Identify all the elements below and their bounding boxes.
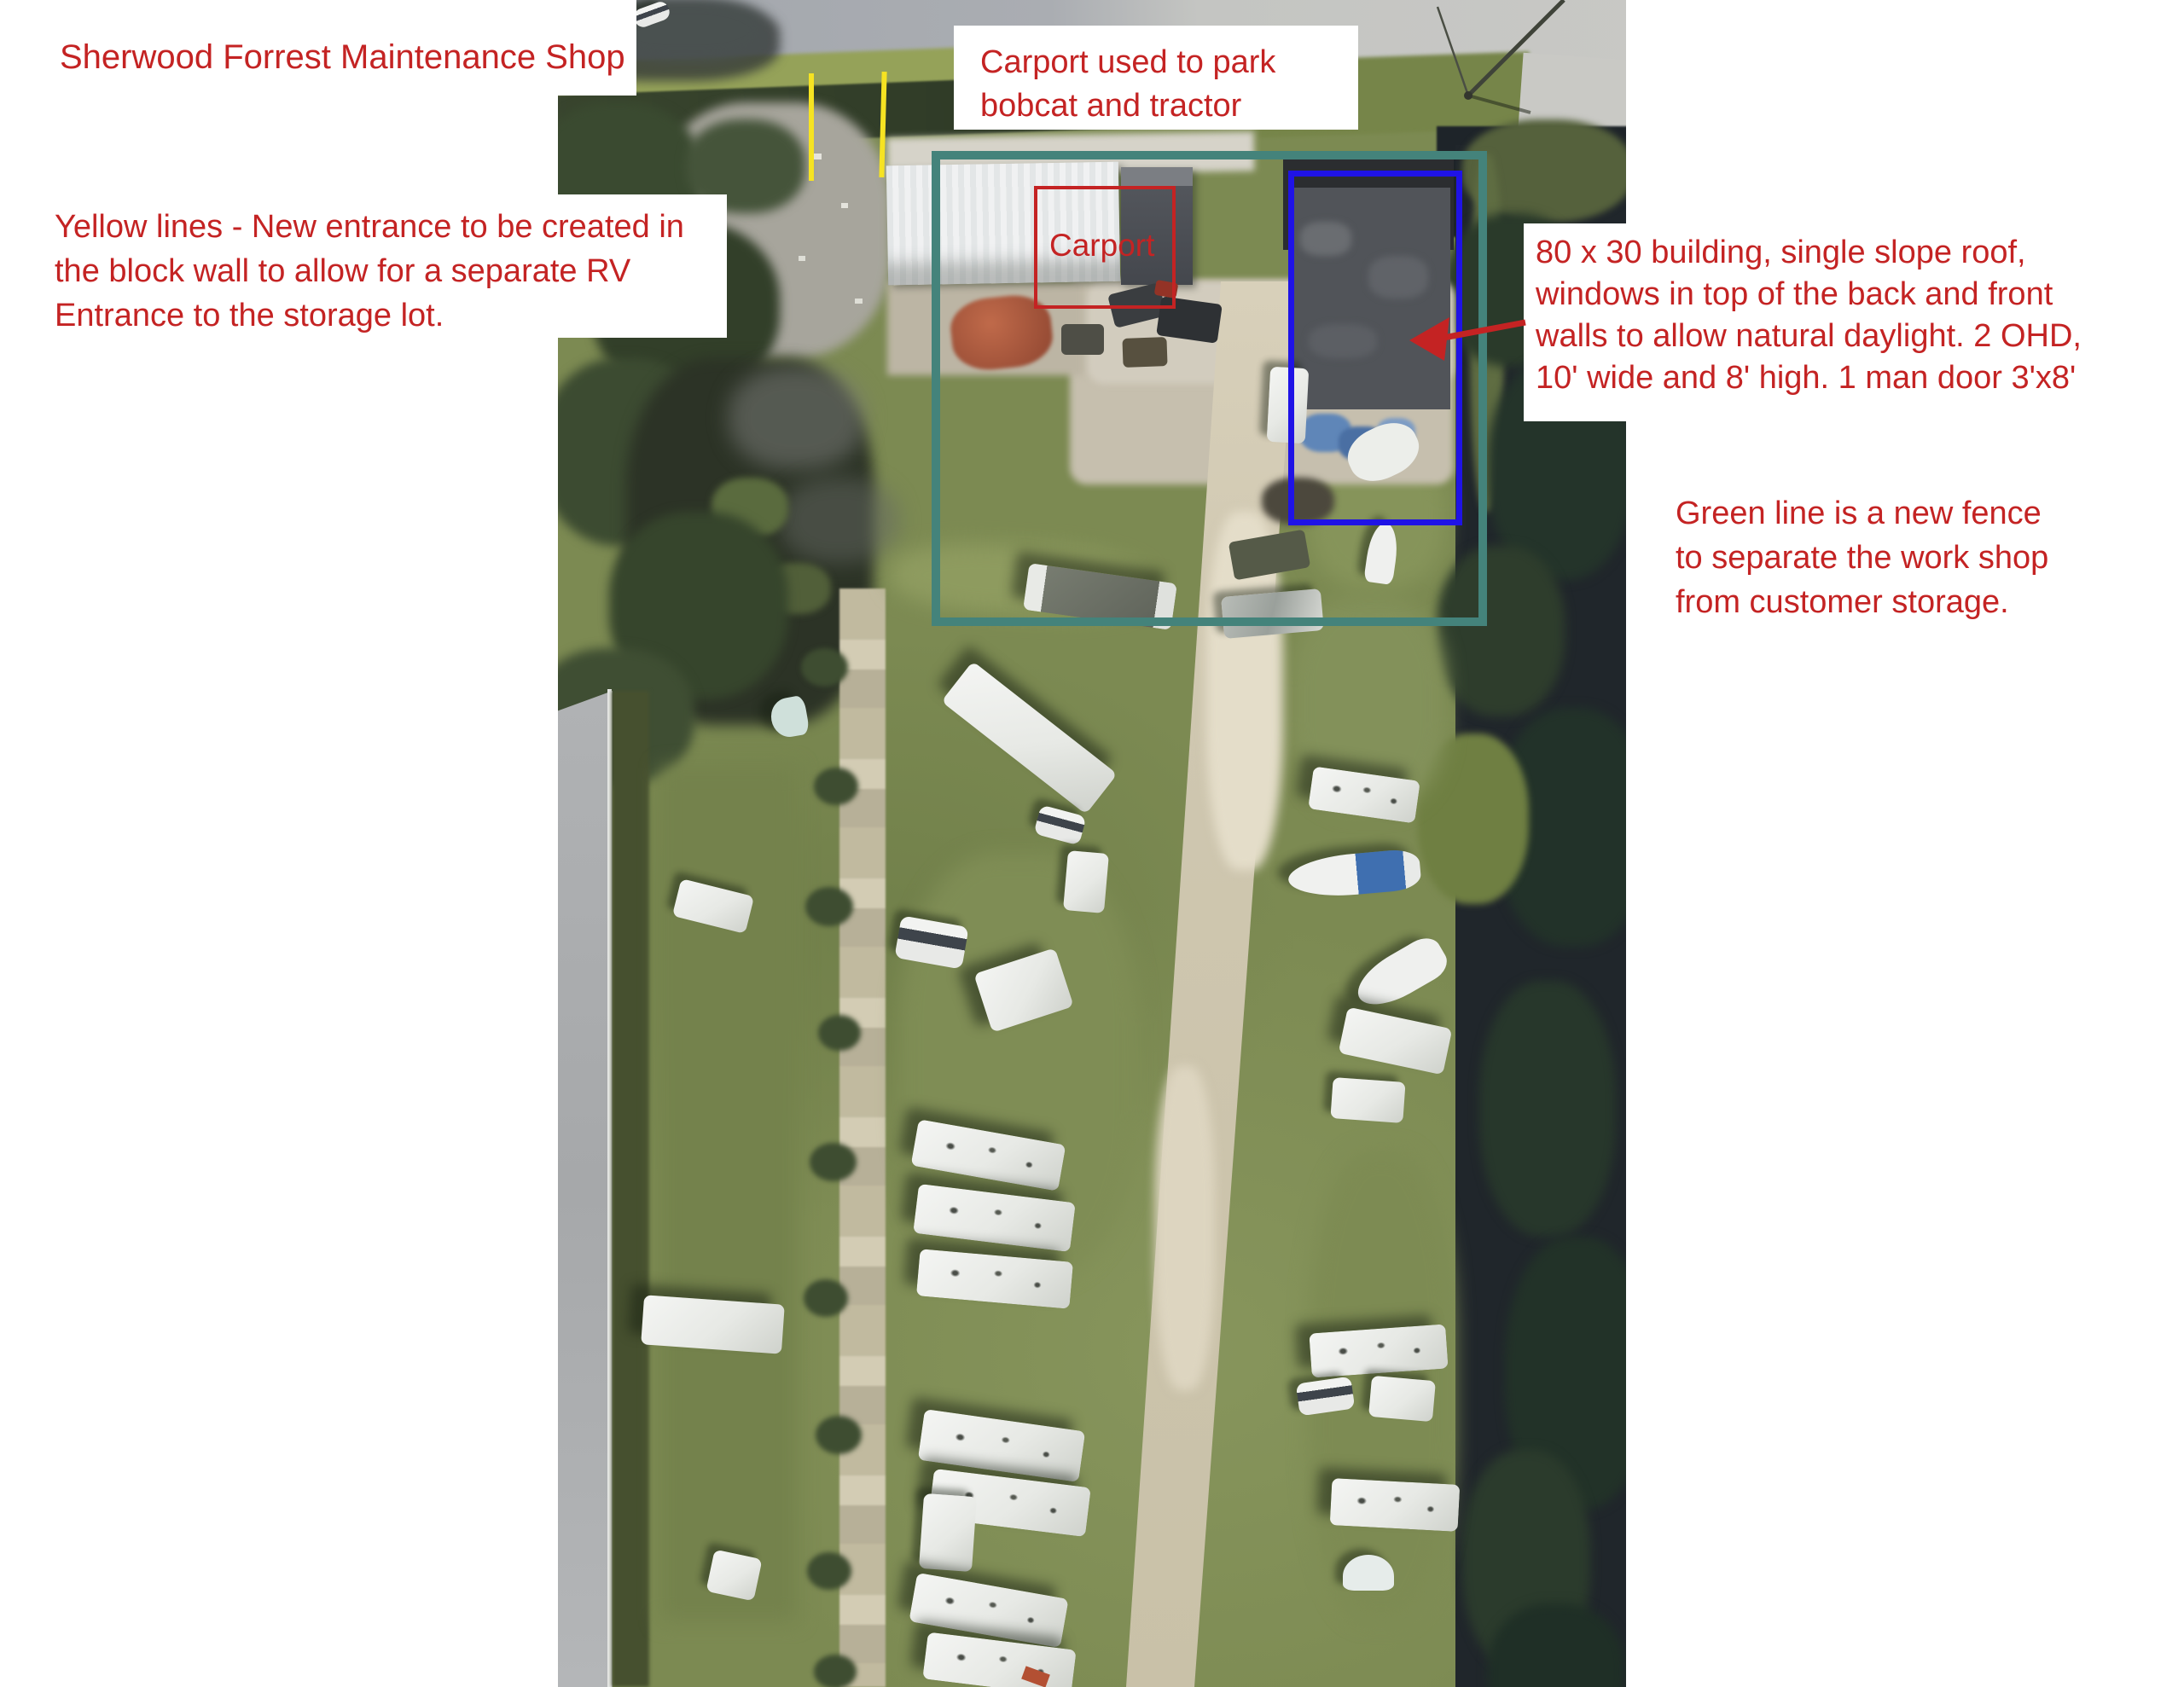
sailboat-blue-cover <box>1287 848 1422 900</box>
building-note: 80 x 30 building, single slope roof, win… <box>1536 232 2082 399</box>
fence-note-line: from customer storage. <box>1676 580 2048 624</box>
fence-note-line: Green line is a new fence <box>1676 491 2048 536</box>
tree-canopy <box>1479 981 1616 1237</box>
rv-trailer <box>1063 850 1109 913</box>
building-note-line: 80 x 30 building, single slope roof, <box>1536 232 2082 274</box>
rv-trailer <box>1339 1007 1453 1075</box>
entrance-note-line: the block wall to allow for a separate R… <box>55 249 684 293</box>
bush <box>804 1279 848 1317</box>
bush <box>814 768 858 805</box>
rv-trailer <box>1309 1324 1448 1377</box>
building-note-line: 10' wide and 8' high. 1 man door 3'x8' <box>1536 357 2082 399</box>
fence-note-line: to separate the work shop <box>1676 536 2048 580</box>
new-entrance-line-left <box>809 73 814 181</box>
debris <box>799 256 805 261</box>
rv-trailer <box>1330 1478 1461 1532</box>
rv-trailer <box>1330 1077 1405 1123</box>
smoke-patch <box>729 367 865 469</box>
building-note-line: windows in top of the back and front <box>1536 274 2082 316</box>
rv-trailer <box>919 1493 977 1572</box>
bush <box>805 887 853 926</box>
bush <box>818 1015 861 1051</box>
debris <box>855 299 863 304</box>
roadside-hedge <box>612 691 649 1687</box>
new-building-outline <box>1288 171 1462 525</box>
carport-note-line: bobcat and tractor <box>980 84 1275 128</box>
smoke-patch <box>780 478 899 563</box>
bush <box>801 648 848 687</box>
entrance-note: Yellow lines - New entrance to be create… <box>55 205 684 338</box>
left-road <box>558 691 613 1687</box>
building-note-line: walls to allow natural daylight. 2 OHD, <box>1536 316 2082 357</box>
rv-trailer <box>1368 1376 1436 1422</box>
boat <box>1343 1555 1394 1591</box>
boat <box>1349 931 1453 1016</box>
debris <box>814 154 822 159</box>
fence-note: Green line is a new fence to separate th… <box>1676 491 2048 624</box>
annotated-site-plan: Sherwood Forrest Maintenance Shop Carpor… <box>0 0 2184 1687</box>
bush <box>816 1416 862 1454</box>
carport-note: Carport used to park bobcat and tractor <box>980 41 1275 128</box>
rv-trailer <box>641 1295 785 1354</box>
dirt-road-highlight <box>1155 1066 1215 1390</box>
dirt-track <box>839 588 886 1687</box>
carport-note-line: Carport used to park <box>980 41 1275 84</box>
rv-trailer <box>941 661 1117 815</box>
bush <box>814 1655 857 1687</box>
debris <box>841 203 848 208</box>
car <box>1033 804 1086 845</box>
entrance-note-line: Entrance to the storage lot. <box>55 293 684 338</box>
bush <box>810 1143 857 1181</box>
carport-box-label: Carport <box>1049 223 1154 267</box>
page-title: Sherwood Forrest Maintenance Shop <box>60 36 625 79</box>
entrance-note-line: Yellow lines - New entrance to be create… <box>55 205 684 249</box>
bush <box>807 1552 851 1590</box>
